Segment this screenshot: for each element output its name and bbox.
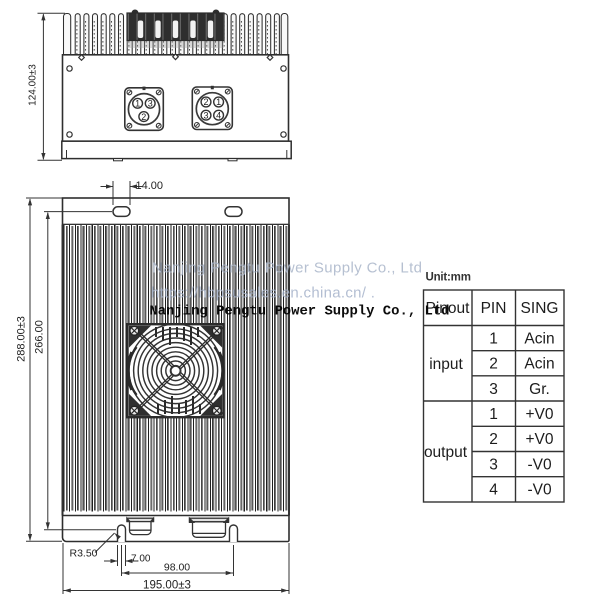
svg-text:R3.50: R3.50 <box>70 548 98 560</box>
svg-text:Acin: Acin <box>524 331 554 348</box>
svg-text:1: 1 <box>489 406 498 423</box>
svg-text:3: 3 <box>203 110 208 120</box>
svg-text:-V0: -V0 <box>527 482 552 499</box>
svg-text:124.00±3: 124.00±3 <box>28 64 39 106</box>
svg-text:14.00: 14.00 <box>136 180 164 192</box>
svg-text:output: output <box>424 444 468 461</box>
svg-text:Nanjing Pengtu Power Supply Co: Nanjing Pengtu Power Supply Co., Ltd <box>149 304 449 320</box>
svg-text:Acin: Acin <box>524 356 554 373</box>
svg-text:-V0: -V0 <box>527 456 552 473</box>
svg-text:2: 2 <box>203 97 208 107</box>
svg-text:98.00: 98.00 <box>164 562 190 574</box>
svg-text:4: 4 <box>489 482 498 499</box>
svg-text:Unit:mm: Unit:mm <box>426 272 471 284</box>
svg-text:2: 2 <box>489 431 498 448</box>
svg-text:7.00: 7.00 <box>131 554 151 565</box>
svg-text:2: 2 <box>141 112 146 122</box>
svg-text:PIN: PIN <box>481 300 507 317</box>
svg-text:195.00±3: 195.00±3 <box>143 580 191 592</box>
svg-text:+V0: +V0 <box>525 406 553 423</box>
svg-text:1: 1 <box>489 331 498 348</box>
svg-text:Nanjing Pengtu Power Supply Co: Nanjing Pengtu Power Supply Co., Ltd <box>152 260 422 277</box>
svg-text:3: 3 <box>489 381 498 398</box>
svg-text:SING: SING <box>521 300 559 317</box>
svg-text:288.00±3: 288.00±3 <box>16 316 28 362</box>
svg-text:1: 1 <box>135 99 140 109</box>
svg-text:3: 3 <box>148 99 153 109</box>
svg-text:266.00: 266.00 <box>34 320 46 354</box>
svg-text:+V0: +V0 <box>525 431 553 448</box>
svg-text:input: input <box>429 356 463 373</box>
svg-text:3: 3 <box>489 456 498 473</box>
svg-text:https://hbpsusales.en.china.cn: https://hbpsusales.en.china.cn/ . <box>151 285 375 302</box>
svg-text:1: 1 <box>216 97 221 107</box>
svg-text:2: 2 <box>489 356 498 373</box>
svg-text:4: 4 <box>216 110 221 120</box>
svg-text:Gr.: Gr. <box>529 381 550 398</box>
